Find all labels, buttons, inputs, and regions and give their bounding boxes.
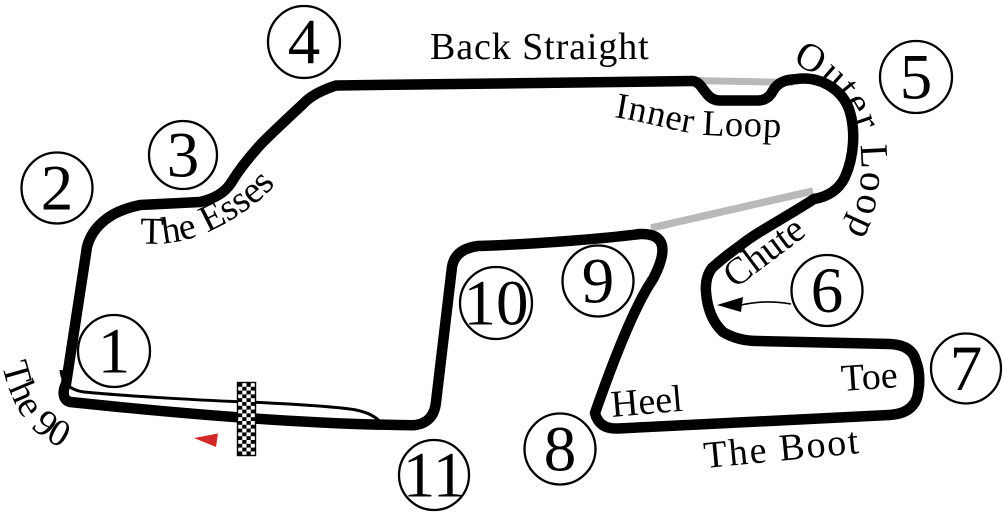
svg-text:4: 4 bbox=[288, 7, 321, 79]
svg-text:1: 1 bbox=[98, 316, 131, 388]
svg-text:9: 9 bbox=[582, 246, 615, 318]
svg-text:8: 8 bbox=[544, 414, 577, 486]
svg-text:11: 11 bbox=[403, 440, 466, 512]
svg-text:10: 10 bbox=[464, 268, 529, 340]
svg-text:2: 2 bbox=[41, 153, 74, 225]
svg-text:5: 5 bbox=[900, 42, 933, 114]
svg-text:The Boot: The Boot bbox=[702, 420, 862, 477]
svg-text:6: 6 bbox=[811, 255, 844, 327]
svg-text:Toe: Toe bbox=[840, 354, 899, 400]
svg-text:7: 7 bbox=[950, 333, 983, 405]
svg-text:Heel: Heel bbox=[609, 378, 684, 426]
svg-text:Inner Loop: Inner Loop bbox=[613, 84, 783, 145]
svg-text:Back Straight: Back Straight bbox=[430, 26, 650, 68]
svg-text:3: 3 bbox=[167, 120, 200, 192]
svg-text:Outer Loop: Outer Loop bbox=[788, 32, 897, 249]
